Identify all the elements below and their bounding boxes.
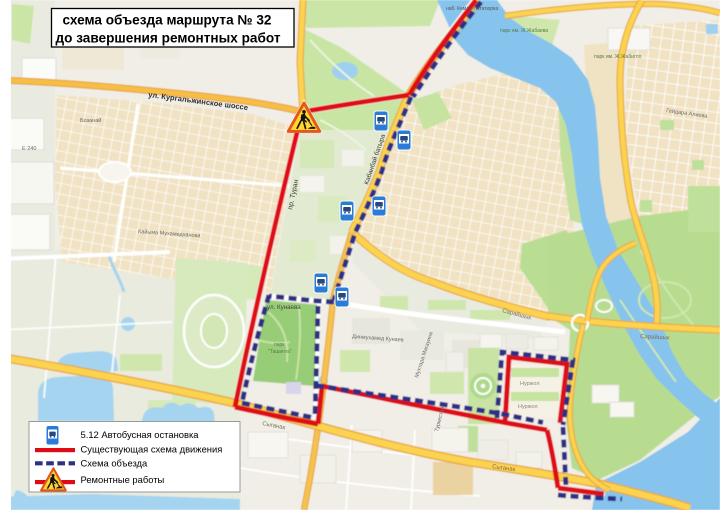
svg-text:Схема объезда: Схема объезда: [81, 458, 149, 469]
svg-text:"Ташинта": "Ташинта": [268, 349, 292, 355]
svg-text:Бозанай: Бозанай: [80, 117, 101, 124]
svg-text:Нуржол: Нуржол: [518, 404, 538, 410]
svg-text:парк им. Ж.Жабаева: парк им. Ж.Жабаева: [500, 28, 548, 34]
svg-text:Е 240: Е 240: [22, 146, 36, 152]
svg-text:схема объезда маршрута № 32: схема объезда маршрута № 32: [63, 13, 272, 28]
svg-text:Нуржол: Нуржол: [520, 381, 540, 387]
svg-text:до завершения ремонтных работ: до завершения ремонтных работ: [56, 31, 281, 46]
svg-text:5.12 Автобусная остановка: 5.12 Автобусная остановка: [81, 429, 200, 440]
svg-text:Существующая схема движения: Существующая схема движения: [81, 444, 223, 455]
svg-text:парк им. Ж.Жабигло: парк им. Ж.Жабигло: [594, 54, 642, 60]
svg-text:парк: парк: [274, 342, 285, 348]
svg-text:Ремонтные работы: Ремонтные работы: [81, 474, 165, 485]
svg-text:наб. Кемаля Ататюрка: наб. Кемаля Ататюрка: [446, 6, 498, 12]
svg-text:ул. Кунаева: ул. Кунаева: [267, 304, 301, 311]
